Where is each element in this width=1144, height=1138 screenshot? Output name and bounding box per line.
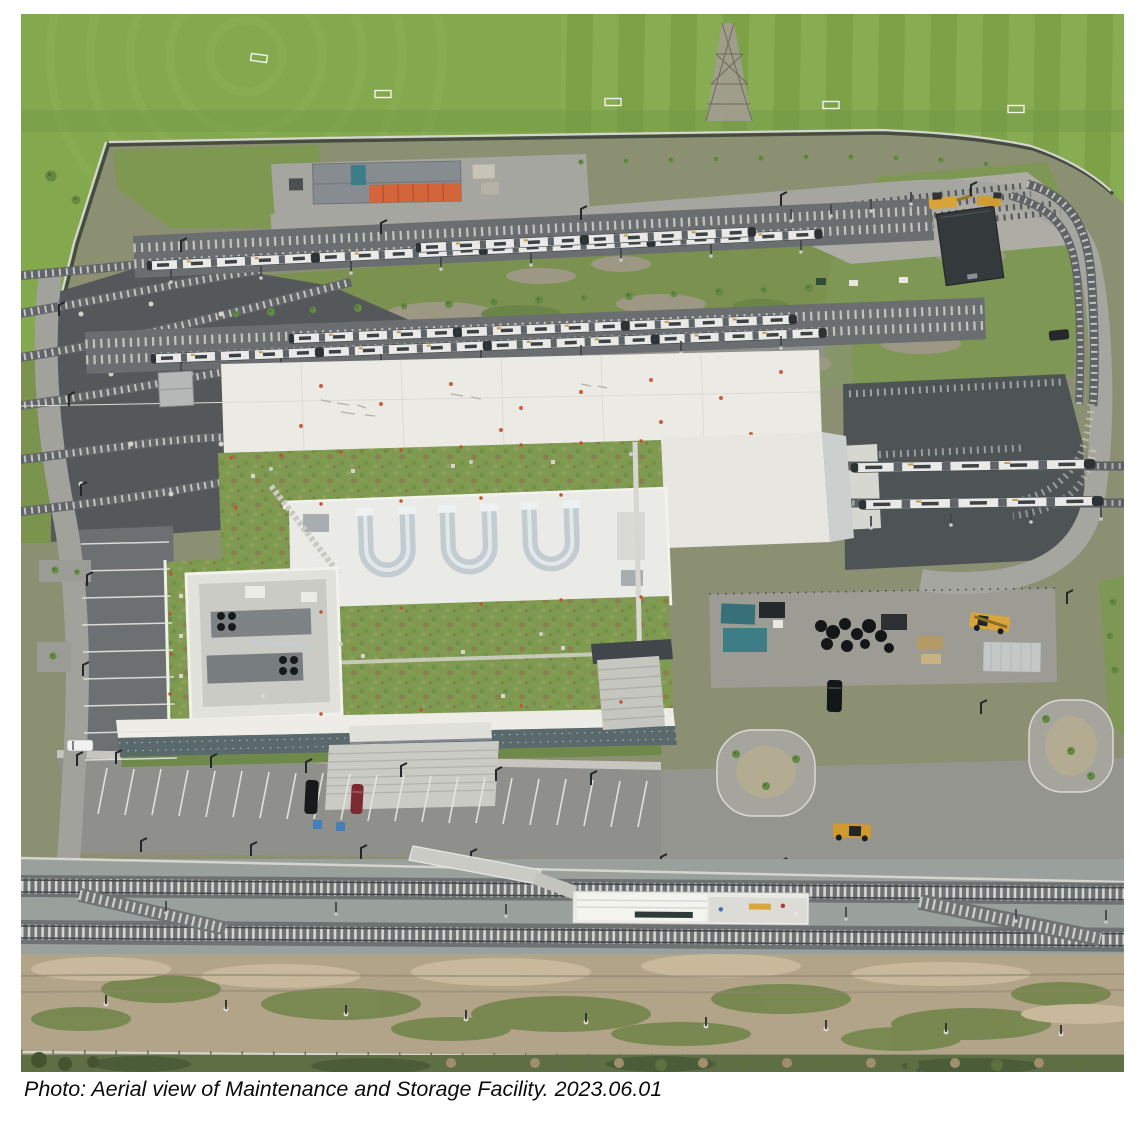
entrance-plaza xyxy=(325,722,499,810)
teal-compressor xyxy=(721,603,756,624)
storage-container xyxy=(983,641,1042,672)
white-car xyxy=(67,740,93,751)
document-page: Photo: Aerial view of Maintenance and St… xyxy=(0,0,1144,1138)
aerial-photo-scene xyxy=(21,14,1124,1072)
black-car xyxy=(304,780,319,815)
handicap-stall xyxy=(313,820,322,829)
photo-caption: Photo: Aerial view of Maintenance and St… xyxy=(24,1076,1124,1103)
east-roof xyxy=(661,432,830,548)
bottom-vegetation xyxy=(21,1052,1124,1072)
utility-hut xyxy=(158,371,194,407)
dirt-strip xyxy=(21,954,1124,1054)
red-car xyxy=(350,784,364,815)
aerial-photo xyxy=(21,14,1124,1072)
rooftop-hvac-section xyxy=(284,488,671,616)
black-suv xyxy=(827,680,843,712)
road-car xyxy=(1049,329,1070,341)
east-stairs xyxy=(591,639,673,730)
station-platform xyxy=(573,891,809,925)
substation-building xyxy=(936,206,1003,285)
teal-compressor xyxy=(723,628,767,652)
crates xyxy=(917,636,943,650)
handicap-stall xyxy=(336,822,345,831)
